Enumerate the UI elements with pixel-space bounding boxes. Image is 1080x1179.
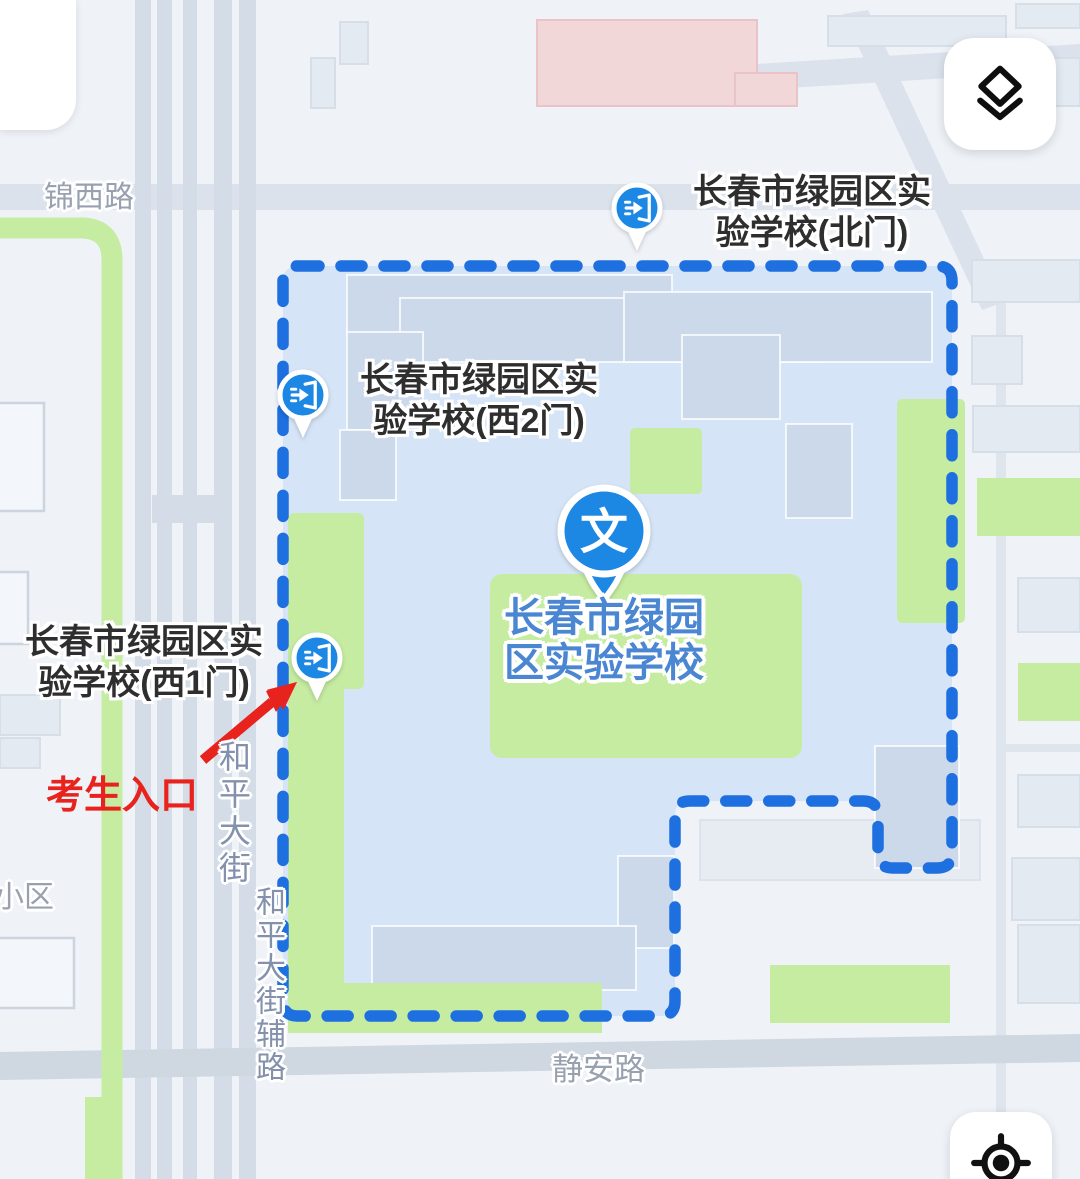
top-left-panel-edge: [0, 0, 76, 130]
gate-pin-west1[interactable]: [285, 629, 349, 712]
school-glyph: 文: [580, 506, 628, 559]
road-label-jinxi: 锦西路: [44, 172, 134, 216]
map-canvas[interactable]: 锦西路 和平大街 和平大街辅路 静安路 小区 长春市绿园区实 验学校(北门): [0, 0, 1080, 1179]
gate-label-west1: 长春市绿园区实 验学校(西1门): [7, 622, 281, 704]
school-poi-label: 长春市绿园 区实验学校: [442, 596, 766, 686]
gate-label-west2: 长春市绿园区实 验学校(西2门): [342, 360, 616, 442]
road-label-heping: 和平大街: [210, 740, 256, 888]
school-poi-icon: 文: [544, 481, 664, 611]
road-label-jingan: 静安路: [552, 1044, 645, 1089]
road-label-residential: 小区: [0, 872, 54, 916]
locate-target-icon: [968, 1130, 1034, 1179]
road-label-heping-fu: 和平大街辅路: [245, 886, 289, 1084]
road-heping-lanes: [135, 0, 256, 1179]
locate-button[interactable]: [950, 1112, 1052, 1179]
gate-pin-north[interactable]: [605, 179, 669, 262]
layers-button[interactable]: [944, 38, 1056, 150]
gate-door-icon: [285, 629, 349, 707]
building-pink: [537, 20, 797, 106]
gate-pin-west2[interactable]: [271, 366, 335, 449]
gate-door-icon: [271, 366, 335, 444]
exam-entrance-label: 考生入口: [46, 764, 198, 819]
gate-door-icon: [605, 179, 669, 257]
layers-icon: [967, 61, 1033, 127]
gate-label-north: 长春市绿园区实 验学校(北门): [672, 172, 952, 254]
